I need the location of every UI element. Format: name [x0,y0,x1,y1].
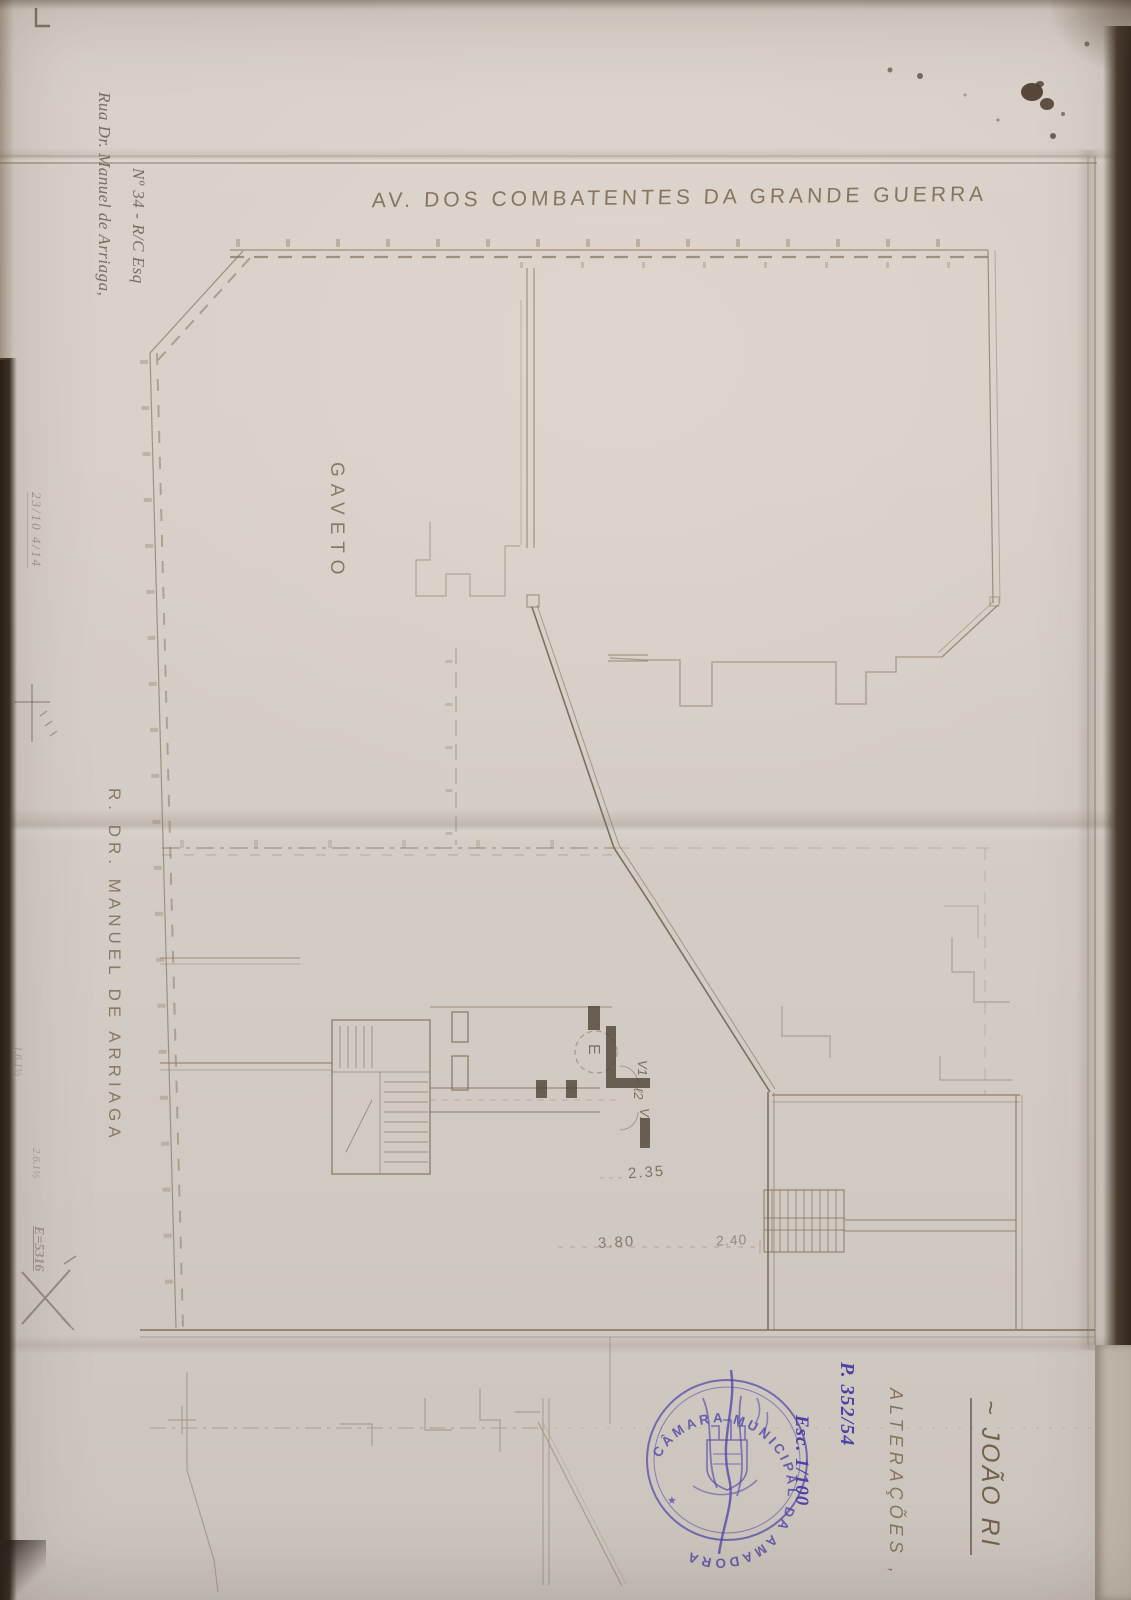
door-label-v1-bottom: V1 [637,1108,652,1124]
floor-plan-walls [160,844,1022,1330]
pencil-note-a: 1.6.1½ [12,1046,24,1076]
scale-note: Esc. 1/100 [790,1415,812,1506]
handwritten-address-line2: Nº 34 - R/C Esq [128,168,148,284]
drawing-frame [0,156,1097,1345]
door-label-v1-top: V1 [635,1060,650,1076]
pencil-note-date: 23/10 4/14 [27,492,44,568]
alterations-label: ALTERAÇÕES , [885,1388,906,1578]
pencil-margin-marks [14,8,76,1330]
entry-corridor [430,1006,650,1148]
entry-label: E [584,1044,602,1055]
street-label-rua-arriaga: R. DR. MANUEL DE ARRIAGA [104,788,124,1143]
process-number-note: P. 352/54 [835,1362,858,1446]
ink-stains [888,42,1090,140]
scanned-blueprint-page: CÂMARA MUNICIPAL DA AMADORA ★ AV. DOS CO… [0,0,1131,1600]
corner-plot-label: GAVETO [325,462,347,581]
wall-poche [536,1006,650,1148]
pencil-note-c: E=5316 [30,1226,46,1271]
party-wall-diagonal [532,605,775,1330]
dimension-3-80: 3.80 [598,1233,636,1252]
main-staircase [332,1020,430,1174]
corner-pencil-mark [36,8,50,26]
pencil-note-b: 2.6.1½ [30,1148,42,1178]
dimension-2-40: 2.40 [716,1231,748,1249]
owner-title-text: ~ JOÃO RI [970,1398,1004,1555]
floor-plan-drawing [0,0,1131,1600]
handwritten-address-line1: Rua Dr. Manuel de Arriaga, [94,92,114,296]
dimension-2-35: 2.35 [627,1163,665,1183]
door-label-l2: ℓ2 [631,1088,646,1099]
site-outline [144,243,1000,1328]
courtyard-block [416,268,999,845]
right-staircase [764,1190,845,1252]
stamp-star-icon: ★ [667,1495,677,1507]
